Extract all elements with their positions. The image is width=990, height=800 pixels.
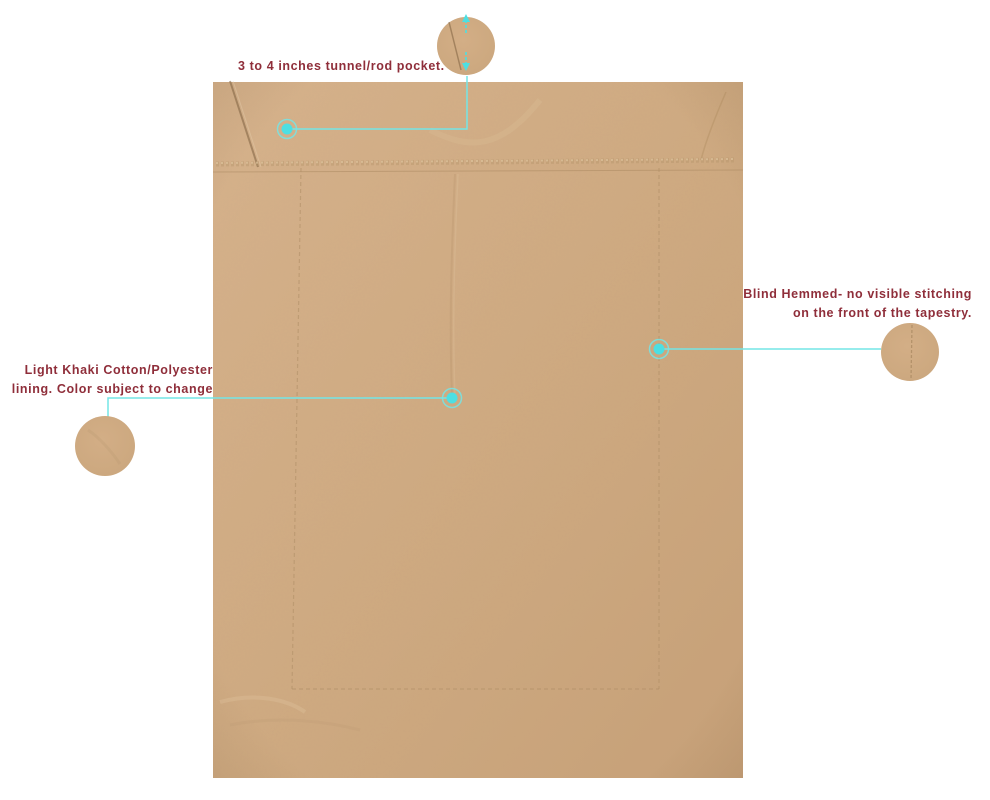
detail-zoom-circle-lining [75, 416, 135, 476]
blind-hem-line-1: Blind Hemmed- no visible stitching [743, 285, 972, 304]
tapestry-fabric-panel [213, 81, 743, 778]
callout-dot-icon [282, 124, 293, 135]
detail-zoom-circle-rod-pocket [437, 14, 495, 75]
lining-line-1: Light Khaki Cotton/Polyester [12, 361, 213, 380]
detail-zoom-circle-blind-hem [881, 323, 939, 381]
lining-line-2: lining. Color subject to change [12, 380, 213, 399]
blind-hem-line-2: on the front of the tapestry. [743, 304, 972, 323]
lining-annotation-label: Light Khaki Cotton/Polyester lining. Col… [12, 361, 213, 399]
scene-graphics [0, 0, 990, 800]
blind-hem-annotation-label: Blind Hemmed- no visible stitching on th… [743, 285, 972, 323]
rod-pocket-annotation-label: 3 to 4 inches tunnel/rod pocket. [238, 57, 445, 76]
detail-circle-fabric [881, 323, 939, 381]
callout-dot-icon [447, 393, 458, 404]
product-annotation-image: 3 to 4 inches tunnel/rod pocket. Blind H… [0, 0, 990, 800]
callout-dot-icon [654, 344, 665, 355]
